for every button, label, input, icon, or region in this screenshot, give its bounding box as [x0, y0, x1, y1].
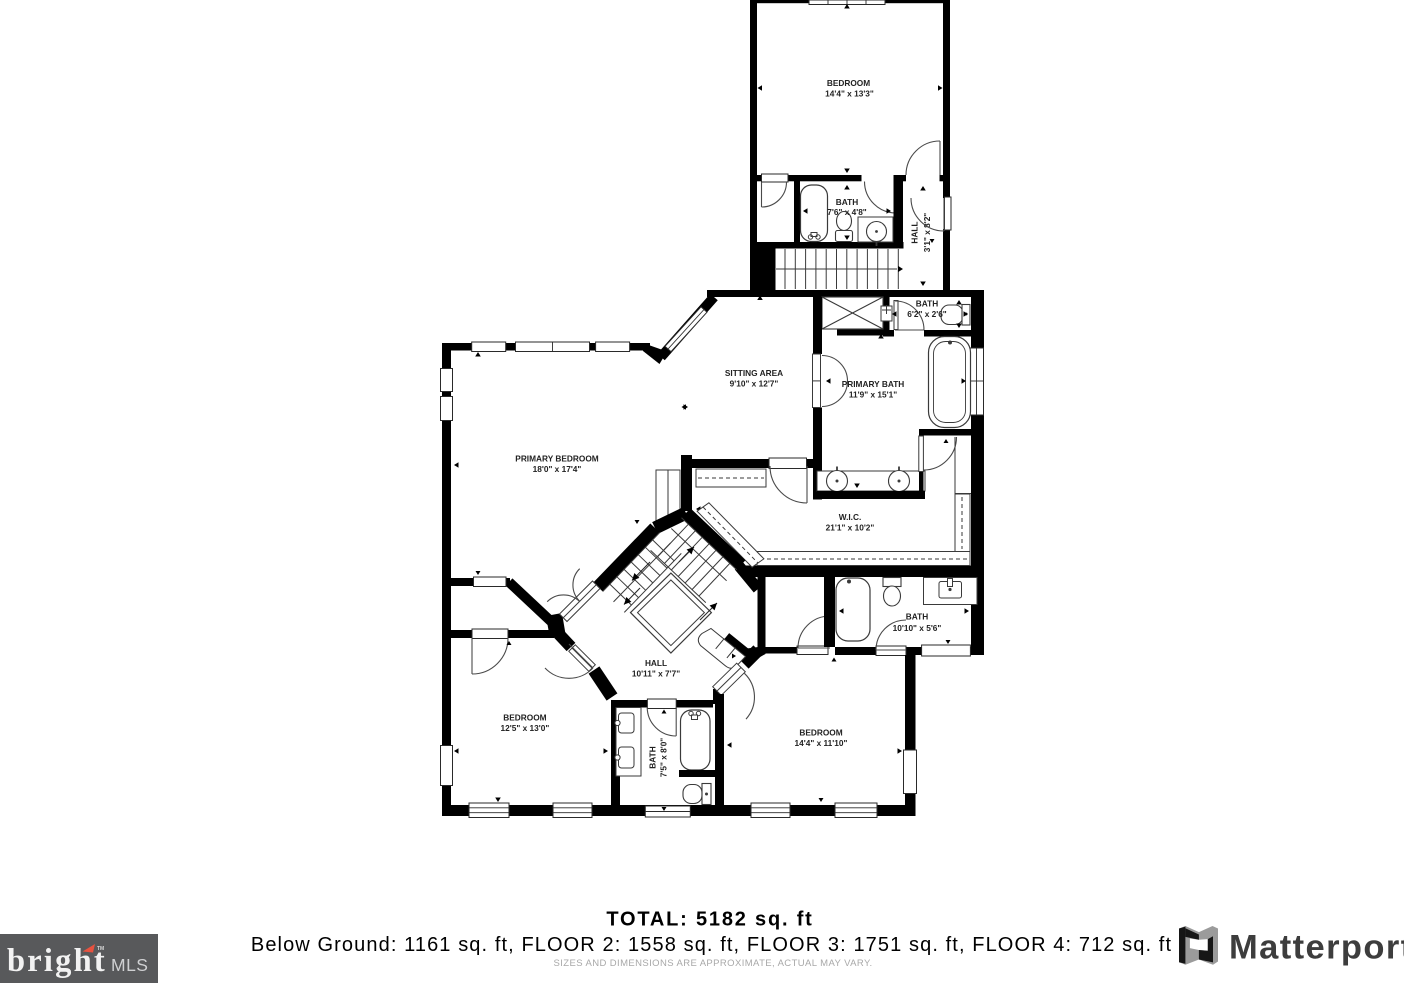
svg-text:14'4" x 13'3": 14'4" x 13'3" — [825, 89, 874, 99]
svg-text:BATH: BATH — [916, 298, 938, 308]
svg-text:SITTING AREA: SITTING AREA — [725, 368, 783, 378]
svg-text:10'10" x 5'6": 10'10" x 5'6" — [893, 623, 942, 633]
svg-text:W.I.C.: W.I.C. — [839, 512, 862, 522]
svg-text:3'1" x 8'2": 3'1" x 8'2" — [922, 213, 932, 253]
svg-text:PRIMARY BEDROOM: PRIMARY BEDROOM — [515, 454, 599, 464]
svg-text:11'9" x 15'1": 11'9" x 15'1" — [849, 389, 897, 399]
svg-text:MLS: MLS — [111, 955, 148, 975]
svg-text:7'5" x 8'0": 7'5" x 8'0" — [659, 738, 669, 778]
svg-text:21'1" x 10'2": 21'1" x 10'2" — [826, 523, 875, 533]
svg-text:SIZES AND DIMENSIONS ARE APPRO: SIZES AND DIMENSIONS ARE APPROXIMATE, AC… — [554, 958, 873, 969]
svg-text:BEDROOM: BEDROOM — [827, 78, 870, 88]
svg-text:10'11" x 7'7": 10'11" x 7'7" — [632, 668, 680, 678]
svg-text:Below Ground: 1161 sq. ft, FLO: Below Ground: 1161 sq. ft, FLOOR 2: 1558… — [251, 934, 1172, 956]
svg-text:HALL: HALL — [910, 221, 920, 243]
svg-text:HALL: HALL — [645, 658, 667, 668]
svg-text:Matterport: Matterport — [1229, 929, 1404, 967]
svg-text:7'6" x 4'8": 7'6" x 4'8" — [827, 207, 867, 217]
svg-text:14'4" x 11'10": 14'4" x 11'10" — [795, 738, 848, 748]
svg-text:BEDROOM: BEDROOM — [503, 713, 546, 723]
svg-text:18'0" x 17'4": 18'0" x 17'4" — [533, 464, 582, 474]
svg-text:TOTAL: 5182 sq. ft: TOTAL: 5182 sq. ft — [606, 909, 813, 931]
svg-text:BATH: BATH — [906, 612, 928, 622]
svg-text:9'10" x 12'7": 9'10" x 12'7" — [730, 378, 779, 388]
svg-text:6'2" x 2'6": 6'2" x 2'6" — [907, 309, 947, 319]
svg-text:BATH: BATH — [836, 197, 858, 207]
svg-text:PRIMARY BATH: PRIMARY BATH — [842, 379, 905, 389]
svg-text:TM: TM — [97, 946, 104, 952]
svg-text:BATH: BATH — [648, 746, 658, 768]
svg-text:BEDROOM: BEDROOM — [799, 727, 842, 737]
svg-text:12'5" x 13'0": 12'5" x 13'0" — [501, 723, 550, 733]
